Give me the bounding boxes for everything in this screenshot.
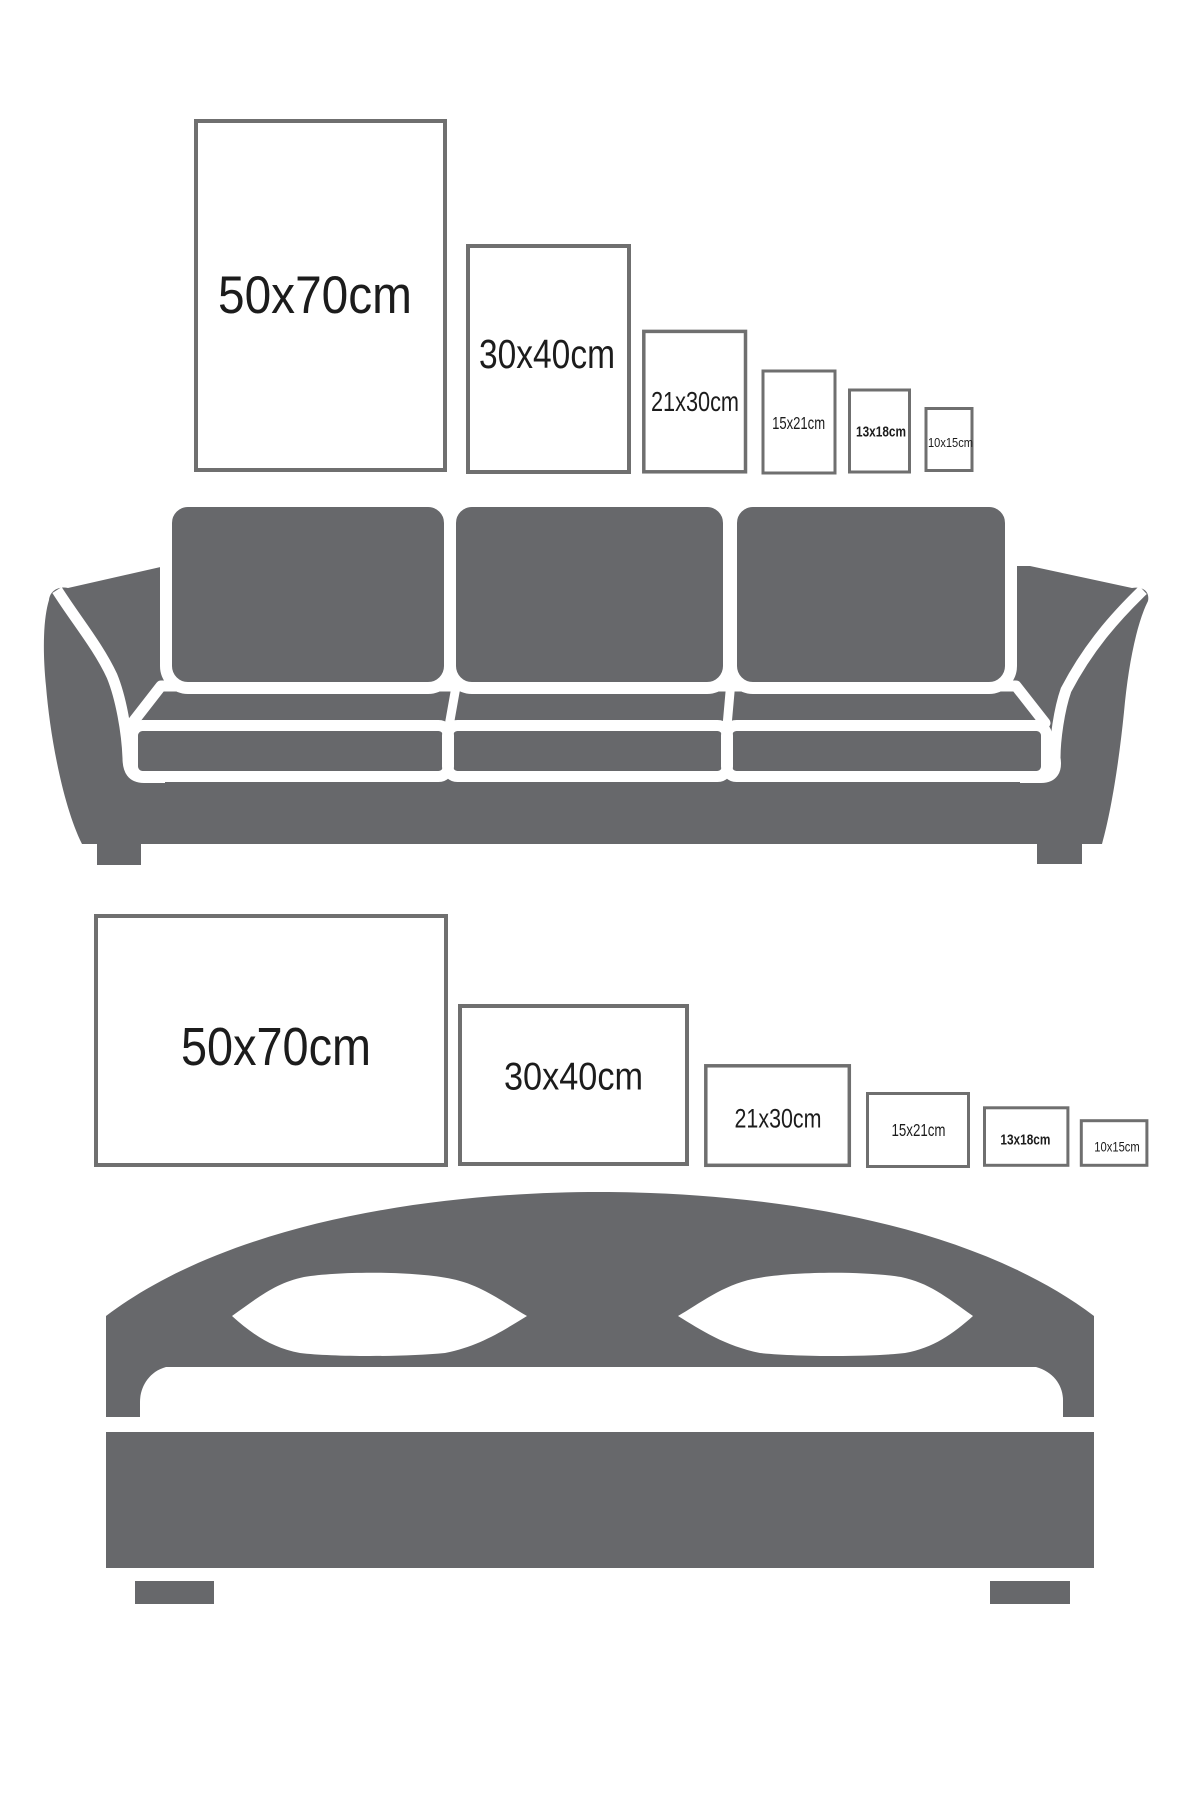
svg-text:50x70cm: 50x70cm — [181, 1017, 371, 1077]
svg-text:13x18cm: 13x18cm — [856, 424, 906, 441]
svg-text:21x30cm: 21x30cm — [735, 1104, 822, 1134]
svg-text:50x70cm: 50x70cm — [218, 266, 412, 325]
svg-text:30x40cm: 30x40cm — [479, 331, 615, 377]
svg-text:10x15cm: 10x15cm — [1094, 1140, 1140, 1155]
svg-text:10x15cm: 10x15cm — [928, 435, 973, 450]
svg-text:21x30cm: 21x30cm — [651, 386, 739, 417]
svg-text:13x18cm: 13x18cm — [1000, 1133, 1050, 1149]
svg-text:15x21cm: 15x21cm — [892, 1120, 946, 1140]
svg-text:15x21cm: 15x21cm — [772, 413, 825, 433]
svg-text:30x40cm: 30x40cm — [504, 1056, 643, 1099]
